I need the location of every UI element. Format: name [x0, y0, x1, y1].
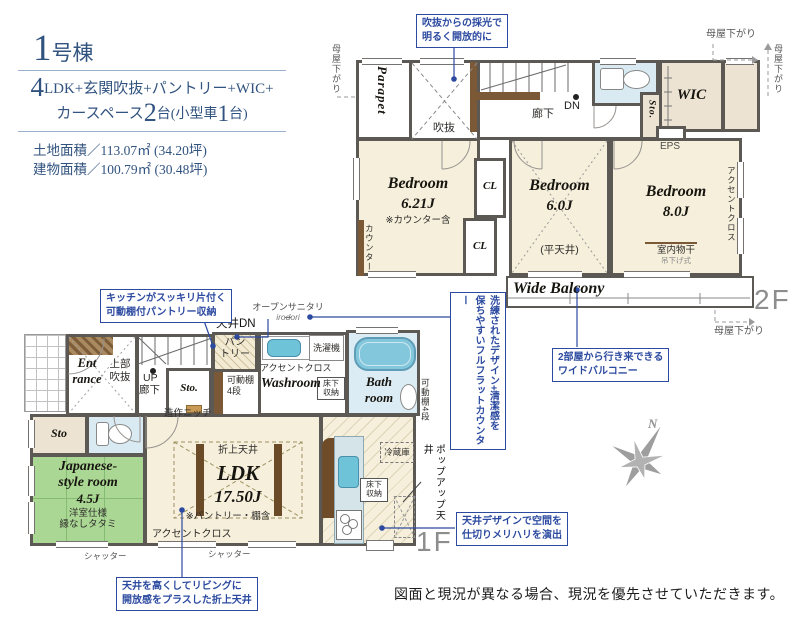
spec-text-1: LDK+玄関吹抜+パントリー+WIC+ — [44, 81, 274, 97]
upper-void-label: 上部 吹抜 — [104, 358, 136, 384]
window — [420, 58, 464, 65]
bathroom-label: Bath room — [350, 374, 408, 405]
movable-shelf-v-label: 可動棚4段 — [420, 378, 430, 438]
moyasagari-label-topright: 母屋下がり — [706, 29, 756, 41]
bedroom3-size: 8.0J — [610, 203, 742, 221]
shutter-label: シャッター — [208, 549, 251, 559]
indoor-drying-label: 室内物干 — [610, 245, 742, 257]
toilet-bowl-icon-2f — [623, 70, 650, 89]
toilet-icon-2f — [600, 68, 624, 90]
shutter-label: シャッター — [84, 551, 127, 561]
jroom-name: Japanese- style room — [30, 459, 146, 491]
ldk-note: ※パントリー・棚含 — [164, 511, 292, 523]
land-area: 土地面積／113.07㎡ (34.20坪) — [33, 139, 207, 159]
callout-pantry: キッチンがスッキリ片付く 可動棚付パントリー収納 — [100, 289, 232, 323]
callout-coffered: 天井を高くしてリビングに 開放感をプラスした折上天井 — [116, 577, 258, 611]
bedroom1-size: 6.21J — [356, 195, 480, 213]
kitchen-underfloor-label: 床下 収納 — [360, 480, 388, 498]
hall-1f-label: 廊下 — [139, 384, 160, 397]
unit-number: 1 — [33, 28, 52, 69]
window — [56, 541, 108, 548]
kitchen-cabinet — [322, 438, 334, 518]
accent-cloth-label-ldk: アクセントクロス — [152, 529, 232, 541]
balcony-door — [528, 271, 582, 278]
divider — [18, 70, 286, 71]
spec-line-1: 4LDK+玄関吹抜+パントリー+WIC+ — [18, 74, 286, 101]
bedroom1-note: ※カウンター含 — [356, 215, 480, 227]
void-rail-2f — [470, 62, 477, 132]
wide-balcony-label: Wide Balcony — [513, 279, 604, 299]
eps-label: EPS — [648, 141, 692, 153]
callout-flat-counter: 洗練されたデザイン+清潔感を 保ちやすいフルフラットカウンター — [450, 292, 506, 450]
window — [600, 58, 636, 65]
cl-label: CL — [463, 240, 497, 253]
compass-north-label: N — [648, 416, 657, 432]
genkan-step — [69, 337, 113, 355]
bedroom2-size: 6.0J — [509, 197, 610, 215]
window — [356, 327, 398, 334]
stove — [336, 510, 362, 540]
window — [158, 541, 216, 548]
jroom-size: 4.5J — [30, 491, 146, 507]
compass-icon — [596, 407, 689, 504]
washer-label: 洗濯機 — [309, 343, 344, 354]
washbasin — [267, 339, 301, 357]
floor-label-1f: 1F — [416, 526, 453, 558]
popup-ceiling-box — [394, 496, 415, 538]
parapet-label: Parapet — [374, 66, 390, 136]
sto-bottom-label: Sto — [30, 426, 88, 441]
floorplan-sheet: 1号棟 4LDK+玄関吹抜+パントリー+WIC+ カースペース2台(小型車1台)… — [0, 0, 805, 619]
unit-title: 1号棟 — [33, 30, 94, 67]
bedroom2-name: Bedroom — [509, 176, 610, 196]
flat-ceiling-label: (平天井) — [509, 244, 610, 257]
movable-shelf-label: 可動棚 4段 — [227, 375, 254, 397]
window — [248, 541, 296, 548]
hanging-type-label: 吊下げ式 — [610, 256, 742, 265]
window — [368, 271, 416, 278]
up-label: UP — [143, 372, 158, 385]
cl-label: CL — [474, 180, 506, 193]
bedroom3-name: Bedroom — [610, 182, 742, 202]
sto-2f-label: Sto. — [645, 100, 657, 136]
hall-2f-label: 廊下 — [532, 108, 554, 121]
spec-num-compact: 1 — [217, 101, 229, 126]
spec-line-2: カースペース2台(小型車1台) — [18, 100, 286, 126]
void-label: 吹抜 — [422, 122, 466, 135]
counter-label: カウンター — [364, 224, 374, 280]
popup-ceiling-label: ポップアップ天井 — [420, 444, 444, 528]
kitchen-door — [366, 540, 394, 551]
bedroom1-name: Bedroom — [356, 174, 480, 194]
window — [362, 58, 402, 65]
window — [726, 58, 754, 65]
disclaimer: 図面と現況が異なる場合、現況を優先させていただきます。 — [394, 586, 784, 603]
floor-label-2f: 2F — [754, 284, 791, 316]
fridge-label: 冷蔵庫 — [380, 447, 414, 457]
building-area: 建物面積／100.79㎡ (30.48坪) — [33, 158, 207, 178]
kitchen-sink — [338, 456, 359, 488]
wash-underfloor-label: 床下 収納 — [317, 379, 345, 397]
spec-text-2c: 台) — [229, 107, 248, 122]
jroom-note: 洋室仕様 縁なしタタミ — [30, 508, 146, 531]
wic-label: WIC — [659, 86, 724, 104]
room-closet-2f — [722, 60, 760, 132]
callout-balcony: 2部屋から行き来できる ワイドバルコニー — [552, 348, 669, 382]
entrance-porch — [24, 334, 66, 412]
stair-rail-2f — [474, 92, 540, 100]
moyasagari-label-bottom: 母屋下がり — [714, 326, 764, 338]
moyasagari-label-right: 母屋下がり — [772, 44, 783, 104]
open-sanitary-brand: irodori — [248, 312, 328, 322]
accent-cloth-label-2f: アクセントクロス — [726, 166, 736, 252]
ldk-name: LDK — [174, 461, 302, 487]
callout-daylight: 吹抜からの採光で 明るく開放的に — [416, 14, 508, 48]
balcony-door — [624, 271, 690, 278]
pantry-label: パン トリー — [212, 337, 258, 361]
spec-num-cars: 2 — [144, 98, 157, 127]
sto-1f-label: Sto. — [168, 382, 210, 395]
moyasagari-label-left: 母屋下がり — [330, 44, 341, 104]
bathtub — [354, 337, 416, 371]
spec-num-ldk: 4 — [30, 72, 44, 102]
unit-suffix: 号棟 — [52, 41, 94, 65]
toilet-bowl-icon-1f — [108, 424, 132, 444]
dn-label: DN — [564, 100, 580, 113]
drying-bar — [645, 242, 697, 244]
burner — [342, 525, 352, 535]
spec-text-2b: 台(小型車 — [157, 107, 218, 122]
callout-ceiling-zoning: 天井デザインで空間を 仕切りメリハリを演出 — [456, 512, 568, 546]
accent-cloth-label-wash: アクセントクロス — [260, 363, 332, 374]
coffered-label: 折上天井 — [174, 445, 302, 457]
washroom-label: Washroom — [261, 375, 321, 391]
ldk-size: 17.50J — [174, 487, 302, 508]
divider — [18, 131, 286, 132]
bathtub-inner — [359, 342, 411, 366]
niche-label: 造作ニッチ — [164, 408, 212, 420]
spec-text-2a: カースペース — [56, 106, 143, 122]
shelf-strip — [214, 372, 223, 414]
